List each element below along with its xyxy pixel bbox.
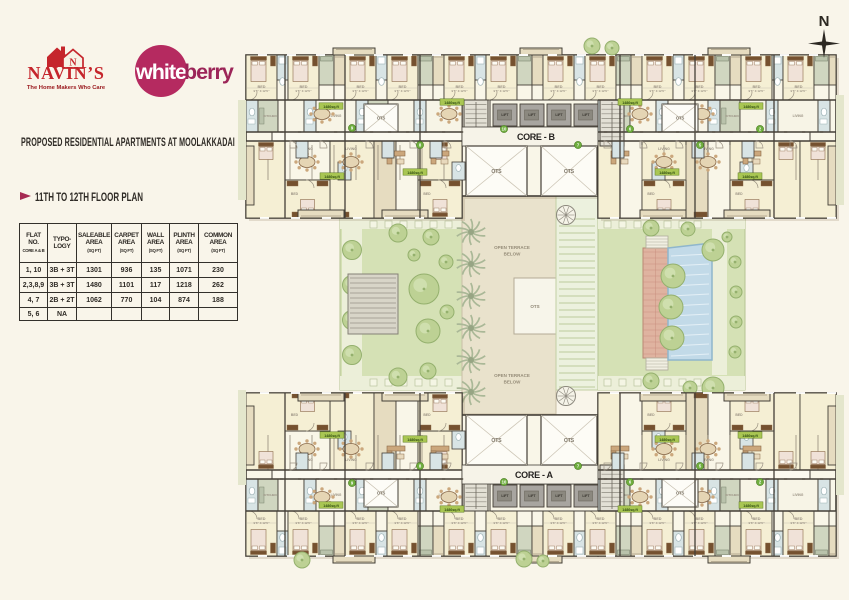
svg-text:9’6’’ X 12’0’’: 9’6’’ X 12’0’’: [253, 89, 269, 93]
svg-text:BED: BED: [735, 413, 743, 417]
svg-text:OTS: OTS: [377, 116, 386, 121]
svg-text:LIFT: LIFT: [555, 494, 563, 498]
svg-text:9’6’’ X 12’0’’: 9’6’’ X 12’0’’: [295, 89, 311, 93]
svg-text:1486sq.ft: 1486sq.ft: [742, 175, 758, 179]
svg-text:1486sq.ft: 1486sq.ft: [323, 504, 339, 508]
svg-text:KITCHEN: KITCHEN: [725, 493, 738, 497]
svg-text:1486sq.ft: 1486sq.ft: [324, 434, 340, 438]
svg-text:OTS: OTS: [377, 491, 386, 496]
svg-text:9’6’’ X 12’0’’: 9’6’’ X 12’0’’: [352, 521, 368, 525]
svg-text:1486sq.ft: 1486sq.ft: [659, 171, 675, 175]
svg-text:9’6’’ X 12’0’’: 9’6’’ X 12’0’’: [649, 521, 665, 525]
svg-text:LIFT: LIFT: [555, 113, 563, 117]
svg-text:1486sq.ft: 1486sq.ft: [444, 508, 460, 512]
svg-text:1486sq.ft: 1486sq.ft: [407, 438, 423, 442]
svg-text:9’6’’ X 12’0’’: 9’6’’ X 12’0’’: [691, 89, 707, 93]
svg-text:LIFT: LIFT: [528, 494, 536, 498]
svg-text:9’6’’ X 12’0’’: 9’6’’ X 12’0’’: [748, 89, 764, 93]
svg-text:BED: BED: [291, 413, 299, 417]
svg-text:9’6’’ X 12’0’’: 9’6’’ X 12’0’’: [592, 89, 608, 93]
svg-text:10: 10: [502, 127, 507, 132]
svg-text:9’6’’ X 12’0’’: 9’6’’ X 12’0’’: [394, 521, 410, 525]
svg-text:1486sq.ft: 1486sq.ft: [742, 434, 758, 438]
svg-text:KITCHEN: KITCHEN: [263, 114, 276, 118]
svg-text:1486sq.ft: 1486sq.ft: [622, 101, 638, 105]
svg-text:BED: BED: [647, 192, 655, 196]
svg-text:N: N: [819, 13, 830, 30]
svg-text:OTS: OTS: [564, 169, 575, 175]
svg-text:9’6’’ X 12’0’’: 9’6’’ X 12’0’’: [790, 89, 806, 93]
svg-text:1486sq.ft: 1486sq.ft: [659, 438, 675, 442]
svg-text:9’6’’ X 12’0’’: 9’6’’ X 12’0’’: [394, 89, 410, 93]
svg-text:LIFT: LIFT: [582, 494, 590, 498]
svg-text:9’6’’ X 12’0’’: 9’6’’ X 12’0’’: [493, 89, 509, 93]
svg-text:BELOW: BELOW: [504, 380, 522, 385]
svg-text:KITCHEN: KITCHEN: [263, 493, 276, 497]
svg-text:9’6’’ X 12’0’’: 9’6’’ X 12’0’’: [253, 521, 269, 525]
svg-text:9’6’’ X 12’0’’: 9’6’’ X 12’0’’: [550, 89, 566, 93]
svg-text:BED: BED: [735, 192, 743, 196]
svg-text:OPEN TERRACE: OPEN TERRACE: [494, 245, 530, 250]
svg-text:BED: BED: [423, 192, 431, 196]
svg-text:LIVING: LIVING: [345, 458, 357, 462]
svg-text:LIVING: LIVING: [793, 493, 804, 497]
svg-text:BED: BED: [647, 413, 655, 417]
svg-text:BED: BED: [291, 192, 299, 196]
svg-text:OTS: OTS: [676, 116, 685, 121]
svg-text:9’6’’ X 12’0’’: 9’6’’ X 12’0’’: [790, 521, 806, 525]
svg-text:OPEN TERRACE: OPEN TERRACE: [494, 373, 530, 378]
svg-text:BELOW: BELOW: [504, 252, 522, 257]
svg-text:1486sq.ft: 1486sq.ft: [743, 105, 759, 109]
svg-text:9’6’’ X 12’0’’: 9’6’’ X 12’0’’: [649, 89, 665, 93]
svg-text:9’6’’ X 12’0’’: 9’6’’ X 12’0’’: [451, 521, 467, 525]
svg-text:9’6’’ X 12’0’’: 9’6’’ X 12’0’’: [295, 521, 311, 525]
svg-text:9’6’’ X 12’0’’: 9’6’’ X 12’0’’: [451, 89, 467, 93]
svg-text:CORE - B: CORE - B: [517, 132, 556, 142]
svg-text:9’6’’ X 12’0’’: 9’6’’ X 12’0’’: [748, 521, 764, 525]
svg-text:9’6’’ X 12’0’’: 9’6’’ X 12’0’’: [352, 89, 368, 93]
svg-text:LIFT: LIFT: [582, 113, 590, 117]
svg-text:9’6’’ X 12’0’’: 9’6’’ X 12’0’’: [691, 521, 707, 525]
svg-text:1486sq.ft: 1486sq.ft: [323, 105, 339, 109]
svg-text:1486sq.ft: 1486sq.ft: [622, 508, 638, 512]
svg-text:BED: BED: [423, 413, 431, 417]
svg-text:LIVING: LIVING: [793, 114, 804, 118]
svg-text:LIFT: LIFT: [501, 113, 509, 117]
svg-text:KITCHEN: KITCHEN: [725, 114, 738, 118]
svg-text:OTS: OTS: [491, 169, 502, 175]
svg-text:LIVING: LIVING: [345, 147, 357, 151]
svg-text:9’6’’ X 12’0’’: 9’6’’ X 12’0’’: [592, 521, 608, 525]
svg-text:OTS: OTS: [491, 438, 502, 444]
svg-text:1486sq.ft: 1486sq.ft: [444, 101, 460, 105]
svg-text:9’6’’ X 12’0’’: 9’6’’ X 12’0’’: [550, 521, 566, 525]
svg-text:OTS: OTS: [564, 438, 575, 444]
svg-text:white: white: [135, 60, 187, 84]
svg-text:LIVING: LIVING: [658, 147, 670, 151]
svg-text:10: 10: [502, 480, 507, 485]
svg-text:CORE - A: CORE - A: [515, 470, 554, 480]
svg-text:berry: berry: [184, 60, 234, 84]
svg-text:LIFT: LIFT: [501, 494, 509, 498]
svg-text:LIVING: LIVING: [658, 458, 670, 462]
svg-text:1486sq.ft: 1486sq.ft: [324, 175, 340, 179]
svg-text:1486sq.ft: 1486sq.ft: [407, 171, 423, 175]
svg-text:1486sq.ft: 1486sq.ft: [743, 504, 759, 508]
svg-text:OTS: OTS: [530, 304, 539, 309]
svg-text:OTS: OTS: [676, 491, 685, 496]
svg-text:LIFT: LIFT: [528, 113, 536, 117]
svg-text:9’6’’ X 12’0’’: 9’6’’ X 12’0’’: [493, 521, 509, 525]
